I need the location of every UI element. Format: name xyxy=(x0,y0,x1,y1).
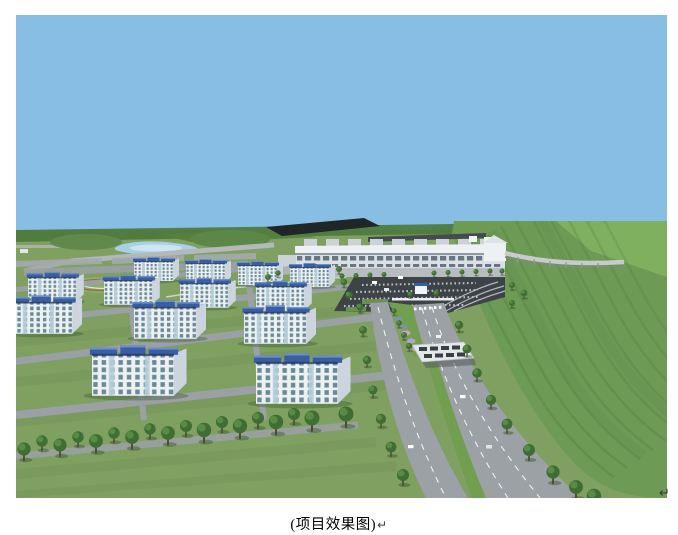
gable-building xyxy=(484,243,506,261)
apartment-building xyxy=(128,300,208,342)
caption-text: (项目效果图) xyxy=(290,517,376,533)
sky xyxy=(16,15,667,235)
project-rendering-figure xyxy=(16,15,667,498)
green-mound xyxy=(50,234,122,250)
figure-caption: (项目效果图)↵ xyxy=(0,513,678,534)
roof-shadow xyxy=(295,253,505,255)
paragraph-mark: ↵ xyxy=(659,486,670,501)
apartment-building xyxy=(16,295,84,337)
roof-box xyxy=(469,236,477,242)
rendering-image xyxy=(16,15,667,498)
apartment-building xyxy=(238,305,318,347)
apartment-building xyxy=(84,345,189,400)
paragraph-mark: ↵ xyxy=(377,518,388,532)
document-page: { "figure": { "type": "architectural-ren… xyxy=(0,0,678,535)
distant-building xyxy=(20,249,28,253)
apartment-building xyxy=(248,353,353,408)
